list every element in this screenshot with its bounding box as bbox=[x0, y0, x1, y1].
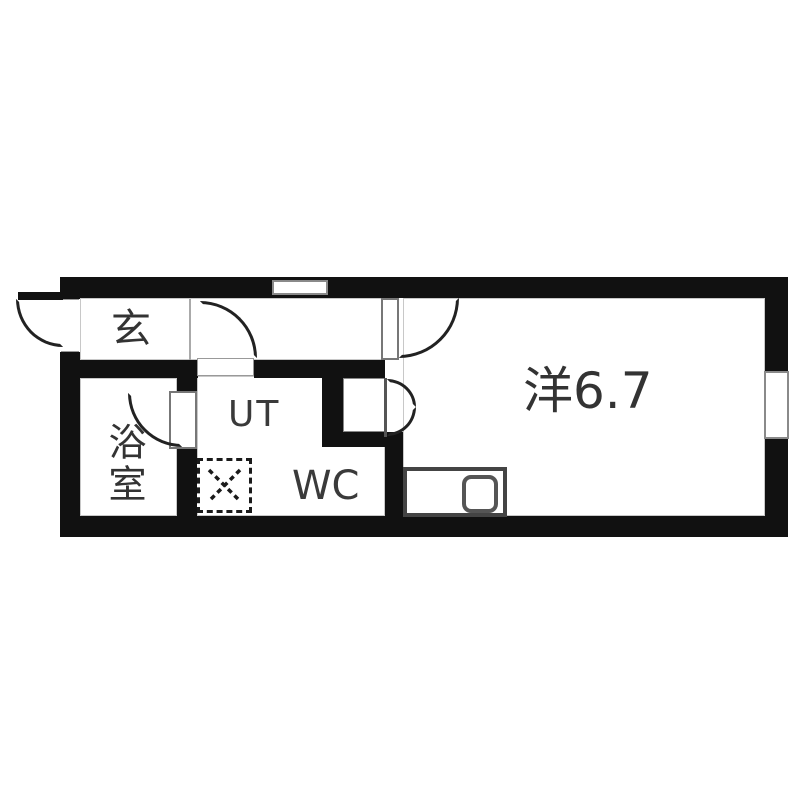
entrance-door-opening bbox=[61, 299, 79, 352]
utility-label: UT bbox=[228, 396, 280, 434]
closet-recess bbox=[343, 378, 385, 432]
entrance-label: 玄 bbox=[111, 308, 151, 350]
utility-threshold bbox=[197, 358, 254, 376]
entrance-door-arc bbox=[16, 299, 63, 347]
wall-hall-bottom bbox=[254, 360, 385, 378]
wall-bathroom-right-upper bbox=[177, 360, 197, 391]
main-room-label: 洋6.7 bbox=[523, 364, 653, 418]
washing-machine-icon bbox=[197, 458, 252, 513]
entrance-step-line bbox=[189, 299, 191, 360]
wall-main-room-left bbox=[385, 432, 403, 516]
kitchen-sink bbox=[462, 475, 498, 513]
toilet-label: WC bbox=[292, 466, 359, 506]
right-wall-window bbox=[764, 371, 789, 439]
bathroom-label: 浴室 bbox=[102, 422, 146, 506]
floor-plan: 玄 浴室 UT WC 洋6.7 bbox=[0, 0, 800, 791]
wall-top bbox=[62, 277, 788, 298]
top-wall-window bbox=[272, 280, 328, 295]
wall-bathroom-right-lower bbox=[177, 449, 197, 516]
wall-left-upper bbox=[60, 277, 80, 299]
wall-left-lower bbox=[60, 352, 80, 537]
wall-bottom bbox=[60, 516, 788, 537]
wall-closet-bottom bbox=[322, 432, 385, 447]
main-room-door-leaf bbox=[381, 298, 399, 360]
